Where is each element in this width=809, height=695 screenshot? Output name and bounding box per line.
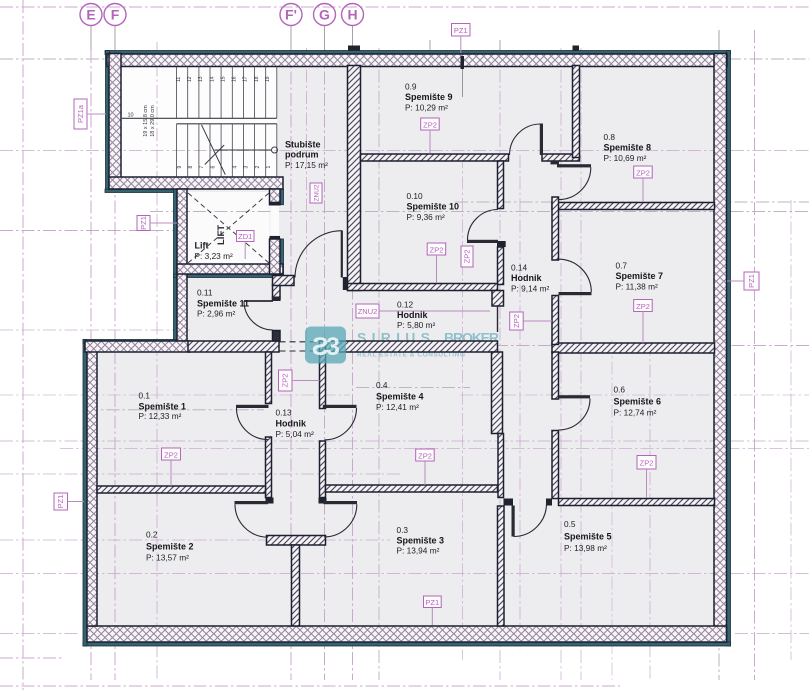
svg-text:0.11: 0.11 xyxy=(197,288,213,298)
svg-text:P: 5,80 m²: P: 5,80 m² xyxy=(397,320,436,330)
svg-text:0.3: 0.3 xyxy=(397,525,409,535)
svg-text:P: 9,14 m²: P: 9,14 m² xyxy=(511,284,550,294)
svg-text:0.7: 0.7 xyxy=(616,261,628,271)
svg-text:0.9: 0.9 xyxy=(405,82,417,92)
svg-text:ZP2: ZP2 xyxy=(430,245,444,254)
svg-text:10: 10 xyxy=(128,113,134,119)
svg-text:17: 17 xyxy=(243,76,249,82)
svg-text:0.5: 0.5 xyxy=(564,519,576,529)
svg-text:PZ1: PZ1 xyxy=(425,598,439,607)
svg-text:15: 15 xyxy=(220,76,226,82)
svg-text:PZ1: PZ1 xyxy=(454,26,468,35)
svg-text:Spemište 11: Spemište 11 xyxy=(197,299,249,309)
svg-text:P: 10,69 m²: P: 10,69 m² xyxy=(604,153,647,163)
svg-text:P: 5,04 m²: P: 5,04 m² xyxy=(276,429,315,439)
svg-text:8: 8 xyxy=(188,166,194,169)
svg-text:4: 4 xyxy=(233,166,239,169)
svg-text:14: 14 xyxy=(209,76,215,82)
svg-text:P: 12,41 m²: P: 12,41 m² xyxy=(376,402,419,412)
svg-text:PZ1: PZ1 xyxy=(747,274,756,288)
svg-text:Spemište 4: Spemište 4 xyxy=(376,392,424,402)
svg-text:0.12: 0.12 xyxy=(397,300,414,310)
svg-text:P: 17,15 m²: P: 17,15 m² xyxy=(285,160,328,170)
svg-text:ZP2: ZP2 xyxy=(164,450,178,459)
svg-text:Lift: Lift xyxy=(195,241,209,251)
svg-text:0.2: 0.2 xyxy=(146,530,158,540)
svg-text:19: 19 xyxy=(265,76,271,82)
svg-text:0.13: 0.13 xyxy=(276,408,293,418)
svg-text:LIFT: LIFT xyxy=(216,225,227,245)
svg-text:Spemište 8: Spemište 8 xyxy=(604,143,652,153)
svg-text:13: 13 xyxy=(198,76,204,82)
svg-text:3: 3 xyxy=(244,166,250,169)
svg-text:6: 6 xyxy=(210,166,216,169)
svg-text:Spemište 3: Spemište 3 xyxy=(397,536,445,546)
svg-text:0.8: 0.8 xyxy=(604,132,616,142)
svg-text:0.10: 0.10 xyxy=(407,191,424,201)
svg-text:ZP2: ZP2 xyxy=(512,314,521,328)
svg-text:16: 16 xyxy=(232,76,238,82)
svg-text:P: 13,57 m²: P: 13,57 m² xyxy=(146,553,189,563)
svg-text:Spemište 10: Spemište 10 xyxy=(407,202,460,212)
svg-text:ZP2: ZP2 xyxy=(636,302,650,311)
svg-text:E: E xyxy=(86,7,95,23)
svg-text:Spemište 1: Spemište 1 xyxy=(139,401,187,411)
svg-text:19 x 15,8 cm: 19 x 15,8 cm xyxy=(143,105,149,137)
svg-text:7: 7 xyxy=(199,166,205,169)
svg-text:PZ1: PZ1 xyxy=(139,216,148,230)
svg-text:P: 2,96 m²: P: 2,96 m² xyxy=(197,309,236,319)
svg-text:PZ1a: PZ1a xyxy=(76,104,85,123)
svg-text:2: 2 xyxy=(255,166,261,169)
svg-text:ZD1: ZD1 xyxy=(238,232,252,241)
svg-text:ZNU2: ZNU2 xyxy=(358,307,378,316)
svg-text:F: F xyxy=(111,7,120,23)
svg-text:18: 18 xyxy=(254,76,260,82)
svg-text:P: 13,94 m²: P: 13,94 m² xyxy=(397,546,440,556)
svg-text:0.4: 0.4 xyxy=(376,380,388,390)
svg-text:F': F' xyxy=(285,7,297,23)
svg-text:Spemište 6: Spemište 6 xyxy=(614,397,662,407)
svg-text:P: 9,36 m²: P: 9,36 m² xyxy=(407,212,446,222)
svg-text:ZP2: ZP2 xyxy=(423,120,437,129)
svg-text:P: 10,29 m²: P: 10,29 m² xyxy=(405,103,448,113)
svg-text:9: 9 xyxy=(177,166,183,169)
svg-text:P: 12,74 m²: P: 12,74 m² xyxy=(614,408,657,418)
svg-text:H: H xyxy=(347,7,357,23)
svg-text:ZP2: ZP2 xyxy=(281,374,290,388)
svg-text:P: 3,23 m²: P: 3,23 m² xyxy=(195,251,234,261)
svg-text:11: 11 xyxy=(176,77,182,82)
svg-text:0.1: 0.1 xyxy=(139,391,151,401)
svg-text:ZP2: ZP2 xyxy=(636,168,650,177)
svg-text:ZNU2: ZNU2 xyxy=(314,184,321,201)
svg-text:Spemište 9: Spemište 9 xyxy=(405,92,453,102)
svg-text:Hodnik: Hodnik xyxy=(511,273,542,283)
svg-text:G: G xyxy=(319,7,330,23)
svg-text:1: 1 xyxy=(266,166,272,169)
svg-text:0.14: 0.14 xyxy=(511,263,528,273)
svg-text:Stubište: Stubište xyxy=(285,140,321,150)
svg-text:ZP2: ZP2 xyxy=(640,459,654,468)
svg-text:Spemište 7: Spemište 7 xyxy=(616,271,664,281)
svg-text:3: 3 xyxy=(326,333,340,361)
svg-text:12: 12 xyxy=(187,76,193,82)
svg-text:P: 11,38 m²: P: 11,38 m² xyxy=(616,282,659,292)
svg-text:0.6: 0.6 xyxy=(614,385,626,395)
svg-text:Spemište 2: Spemište 2 xyxy=(146,542,194,552)
svg-text:P: 13,98 m²: P: 13,98 m² xyxy=(564,543,607,553)
svg-text:Hodnik: Hodnik xyxy=(276,419,307,429)
svg-text:P: 12,33 m²: P: 12,33 m² xyxy=(139,411,182,421)
svg-text:podrum: podrum xyxy=(285,150,319,160)
svg-text:Spemište 5: Spemište 5 xyxy=(564,532,612,542)
svg-text:PZ1: PZ1 xyxy=(56,495,65,509)
svg-text:ZP2: ZP2 xyxy=(418,451,432,460)
svg-text:18 x 29,0 cm: 18 x 29,0 cm xyxy=(150,105,156,137)
svg-text:ZP2: ZP2 xyxy=(463,250,472,264)
